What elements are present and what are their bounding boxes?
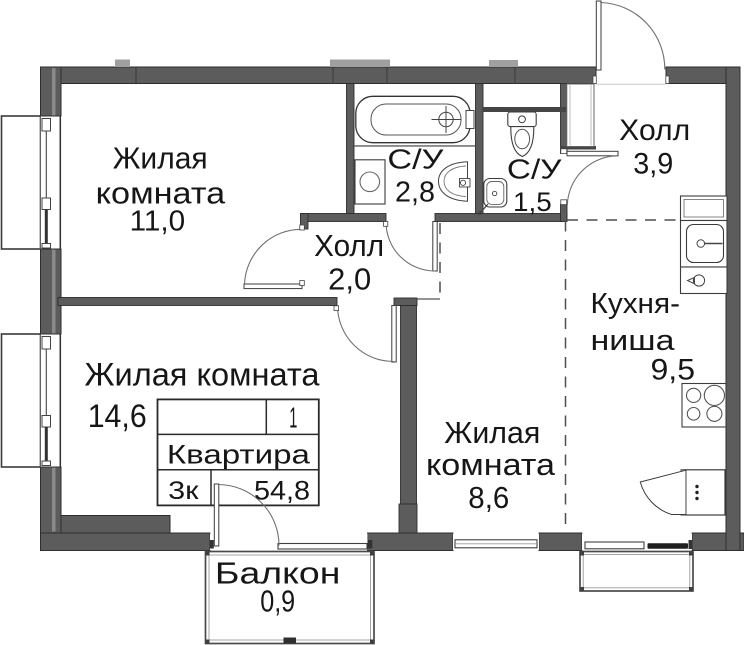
svg-text:3,9: 3,9 [633, 148, 673, 181]
svg-text:Холл: Холл [314, 228, 384, 263]
svg-text:1: 1 [289, 403, 297, 435]
svg-text:Жилая: Жилая [444, 415, 540, 450]
svg-text:3к: 3к [168, 477, 200, 505]
svg-text:С/У: С/У [387, 144, 443, 175]
svg-text:С/У: С/У [507, 154, 562, 185]
svg-text:ниша: ниша [591, 325, 676, 357]
svg-text:Жилая комната: Жилая комната [85, 357, 321, 393]
svg-text:0,9: 0,9 [260, 585, 295, 619]
svg-text:54,8: 54,8 [254, 476, 310, 506]
svg-text:Жилая: Жилая [113, 142, 208, 176]
svg-text:комната: комната [426, 447, 556, 482]
svg-text:9,5: 9,5 [651, 354, 696, 387]
svg-text:14,6: 14,6 [88, 398, 147, 434]
svg-text:1,5: 1,5 [513, 187, 552, 217]
svg-text:2,0: 2,0 [328, 262, 371, 296]
svg-text:2,8: 2,8 [395, 177, 435, 209]
svg-text:Холл: Холл [619, 114, 690, 147]
svg-text:8,6: 8,6 [468, 480, 509, 515]
svg-text:Квартира: Квартира [167, 440, 311, 470]
svg-text:11,0: 11,0 [130, 206, 186, 238]
svg-text:Кухня-: Кухня- [591, 288, 681, 320]
